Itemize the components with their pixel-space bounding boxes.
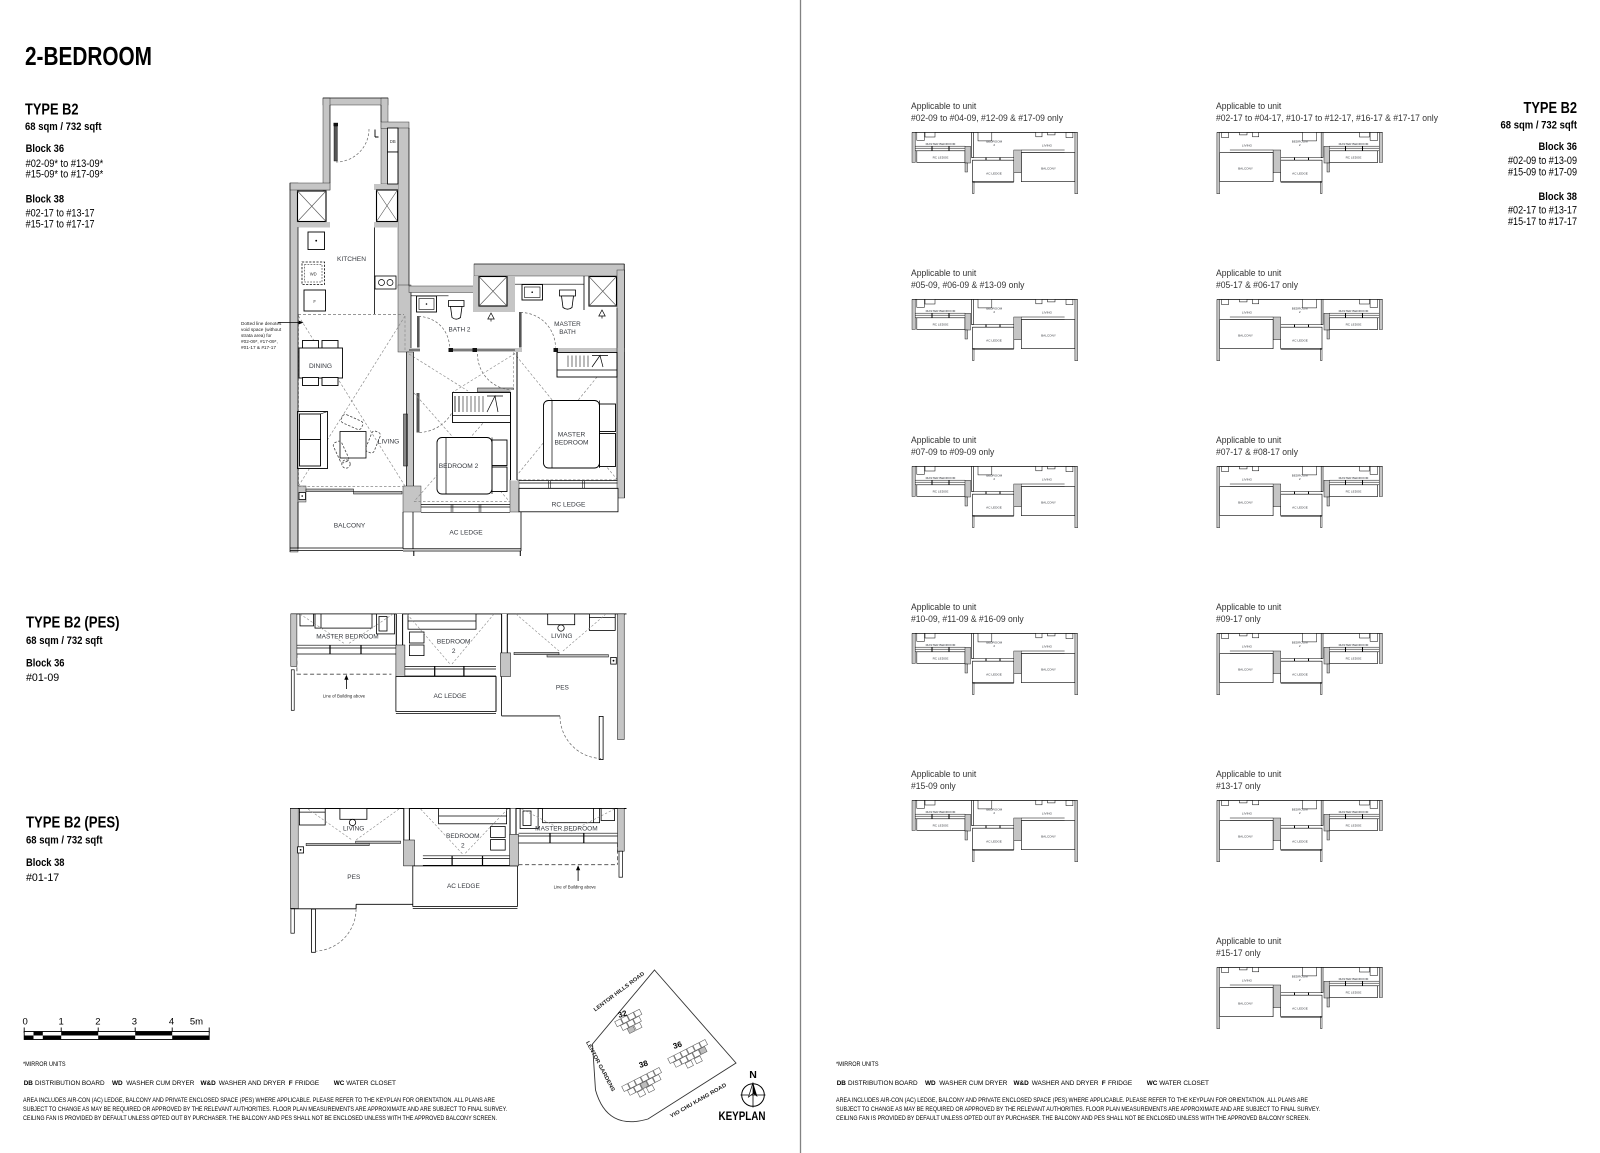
- svg-text:WD: WD: [112, 1080, 123, 1087]
- svg-text:WD: WD: [925, 1080, 936, 1087]
- svg-text:#13-17 only: #13-17 only: [1216, 781, 1261, 792]
- svg-text:68 sqm / 732 sqft: 68 sqm / 732 sqft: [25, 121, 102, 133]
- svg-text:#02-17 to #04-17, #10-17 to #1: #02-17 to #04-17, #10-17 to #12-17, #16-…: [1216, 113, 1438, 124]
- svg-text:Block 38: Block 38: [1539, 191, 1578, 203]
- svg-text:#15-17 to #17-17: #15-17 to #17-17: [26, 218, 95, 230]
- svg-text:MASTER BEDROOM: MASTER BEDROOM: [316, 634, 378, 641]
- svg-text:DISTRIBUTION BOARD: DISTRIBUTION BOARD: [848, 1080, 918, 1087]
- svg-text:W&D: W&D: [1014, 1080, 1030, 1087]
- svg-text:BEDROOM: BEDROOM: [437, 639, 471, 646]
- svg-text:Applicable to unit: Applicable to unit: [1216, 435, 1282, 446]
- svg-text:68 sqm / 732 sqft: 68 sqm / 732 sqft: [26, 635, 103, 647]
- svg-text:2: 2: [452, 648, 456, 655]
- svg-text:Applicable to unit: Applicable to unit: [911, 101, 977, 112]
- svg-text:#01-09: #01-09: [26, 672, 59, 684]
- svg-text:Applicable to unit: Applicable to unit: [911, 268, 977, 279]
- svg-text:#05-17 & #06-17 only: #05-17 & #06-17 only: [1216, 280, 1298, 291]
- svg-text:68 sqm / 732 sqft: 68 sqm / 732 sqft: [1501, 120, 1578, 132]
- svg-text:AREA INCLUDES AIR-CON (AC) LED: AREA INCLUDES AIR-CON (AC) LEDGE, BALCON…: [836, 1097, 1308, 1104]
- svg-text:DB: DB: [390, 139, 396, 144]
- svg-text:BALCONY: BALCONY: [334, 523, 366, 530]
- svg-text:#07-17 & #08-17 only: #07-17 & #08-17 only: [1216, 447, 1298, 458]
- svg-text:#09-17 only: #09-17 only: [1216, 614, 1261, 625]
- svg-text:68 sqm / 732 sqft: 68 sqm / 732 sqft: [26, 835, 103, 847]
- svg-text:WATER CLOSET: WATER CLOSET: [346, 1080, 396, 1087]
- svg-text:F: F: [313, 299, 316, 304]
- svg-text:BEDROOM 2: BEDROOM 2: [439, 463, 479, 470]
- svg-text:#02-17 to #13-17: #02-17 to #13-17: [1508, 205, 1577, 217]
- svg-text:Applicable to unit: Applicable to unit: [1216, 936, 1282, 947]
- svg-text:F: F: [289, 1080, 293, 1087]
- svg-text:36: 36: [672, 1039, 684, 1050]
- svg-text:LENTOR GARDENS: LENTOR GARDENS: [584, 1040, 616, 1093]
- svg-text:TYPE B2 (PES): TYPE B2 (PES): [26, 815, 120, 832]
- svg-text:WC: WC: [1147, 1080, 1158, 1087]
- svg-text:Applicable to unit: Applicable to unit: [911, 769, 977, 780]
- svg-text:#15-09 to #17-09: #15-09 to #17-09: [1508, 167, 1577, 179]
- svg-text:AREA INCLUDES AIR-CON (AC) LED: AREA INCLUDES AIR-CON (AC) LEDGE, BALCON…: [23, 1097, 495, 1104]
- svg-text:Block 38: Block 38: [26, 857, 65, 869]
- svg-text:2: 2: [95, 1017, 100, 1028]
- svg-text:Applicable to unit: Applicable to unit: [1216, 268, 1282, 279]
- svg-text:Applicable to unit: Applicable to unit: [911, 602, 977, 613]
- svg-text:DINING: DINING: [309, 363, 332, 370]
- svg-text:LIVING: LIVING: [343, 826, 364, 833]
- svg-text:Line of Building above: Line of Building above: [554, 884, 597, 889]
- svg-text:LENTOR HILLS ROAD: LENTOR HILLS ROAD: [593, 971, 646, 1013]
- svg-text:BATH 2: BATH 2: [449, 327, 471, 334]
- svg-text:N: N: [749, 1069, 757, 1081]
- svg-text:W&D: W&D: [201, 1080, 217, 1087]
- svg-text:WC: WC: [334, 1080, 345, 1087]
- svg-text:#15-17 to #17-17: #15-17 to #17-17: [1508, 216, 1577, 228]
- svg-text:PES: PES: [347, 874, 361, 881]
- svg-text:38: 38: [638, 1058, 650, 1069]
- svg-text:Block 36: Block 36: [1539, 141, 1578, 153]
- svg-text:PES: PES: [556, 685, 570, 692]
- svg-text:*MIRROR UNITS: *MIRROR UNITS: [836, 1061, 879, 1068]
- svg-text:#15-09 only: #15-09 only: [911, 781, 956, 792]
- svg-text:#01-17 & #17-17: #01-17 & #17-17: [241, 345, 276, 350]
- svg-text:BEDROOM: BEDROOM: [446, 833, 480, 840]
- svg-text:1: 1: [58, 1017, 63, 1028]
- svg-text:*MIRROR UNITS: *MIRROR UNITS: [23, 1061, 66, 1068]
- svg-text:strata area) for: strata area) for: [241, 333, 272, 338]
- svg-text:AC LEDGE: AC LEDGE: [433, 693, 467, 700]
- svg-text:DB: DB: [24, 1080, 34, 1087]
- svg-text:#02-09*, #17-09*,: #02-09*, #17-09*,: [241, 339, 278, 344]
- svg-text:WASHER AND DRYER: WASHER AND DRYER: [219, 1080, 286, 1087]
- svg-text:2-BEDROOM: 2-BEDROOM: [25, 43, 152, 71]
- svg-text:CEILING FAN IS PROVIDED BY DEF: CEILING FAN IS PROVIDED BY DEFAULT UNLES…: [23, 1115, 497, 1122]
- svg-text:SUBJECT TO CHANGE AS MAY BE RE: SUBJECT TO CHANGE AS MAY BE REQUIRED OR …: [23, 1106, 507, 1113]
- svg-text:#05-09, #06-09 & #13-09 only: #05-09, #06-09 & #13-09 only: [911, 280, 1025, 291]
- svg-text:0: 0: [23, 1017, 28, 1028]
- svg-text:2: 2: [461, 843, 465, 850]
- svg-text:LIVING: LIVING: [551, 633, 572, 640]
- svg-text:CEILING FAN IS PROVIDED BY DEF: CEILING FAN IS PROVIDED BY DEFAULT UNLES…: [836, 1115, 1310, 1122]
- svg-text:F: F: [1102, 1080, 1106, 1087]
- svg-text:#01-17: #01-17: [26, 872, 59, 884]
- svg-text:WASHER CUM DRYER: WASHER CUM DRYER: [939, 1080, 1008, 1087]
- svg-text:#10-09, #11-09 & #16-09 only: #10-09, #11-09 & #16-09 only: [911, 614, 1024, 625]
- svg-text:Line of Building above: Line of Building above: [323, 694, 366, 699]
- svg-text:TYPE B2: TYPE B2: [1524, 100, 1578, 117]
- svg-text:BEDROOM: BEDROOM: [554, 440, 588, 447]
- svg-text:WASHER AND DRYER: WASHER AND DRYER: [1032, 1080, 1099, 1087]
- svg-text:DISTRIBUTION BOARD: DISTRIBUTION BOARD: [35, 1080, 105, 1087]
- svg-text:Applicable to unit: Applicable to unit: [1216, 769, 1282, 780]
- svg-text:#02-09 to #13-09: #02-09 to #13-09: [1508, 155, 1577, 167]
- svg-text:TYPE B2 (PES): TYPE B2 (PES): [26, 615, 120, 632]
- svg-text:4: 4: [169, 1017, 174, 1028]
- svg-text:3: 3: [132, 1017, 137, 1028]
- svg-text:FRIDGE: FRIDGE: [1108, 1080, 1132, 1087]
- svg-text:WASHER CUM DRYER: WASHER CUM DRYER: [126, 1080, 195, 1087]
- svg-text:KEYPLAN: KEYPLAN: [719, 1109, 766, 1123]
- svg-text:MASTER BEDROOM: MASTER BEDROOM: [535, 826, 597, 833]
- svg-text:RC LEDGE: RC LEDGE: [552, 502, 586, 509]
- svg-text:DB: DB: [837, 1080, 847, 1087]
- svg-text:SUBJECT TO CHANGE AS MAY BE RE: SUBJECT TO CHANGE AS MAY BE REQUIRED OR …: [836, 1106, 1320, 1113]
- svg-text:Block 36: Block 36: [26, 143, 65, 155]
- svg-text:void space (without: void space (without: [241, 327, 282, 332]
- svg-text:FRIDGE: FRIDGE: [295, 1080, 319, 1087]
- svg-text:BATH: BATH: [559, 329, 576, 336]
- svg-text:Block 38: Block 38: [26, 194, 65, 206]
- svg-text:WD: WD: [310, 272, 317, 277]
- svg-text:Applicable to unit: Applicable to unit: [911, 435, 977, 446]
- svg-text:TYPE B2: TYPE B2: [25, 102, 79, 119]
- svg-text:KITCHEN: KITCHEN: [337, 256, 366, 263]
- svg-text:LIVING: LIVING: [378, 439, 400, 446]
- svg-text:5m: 5m: [190, 1017, 203, 1028]
- svg-text:WATER CLOSET: WATER CLOSET: [1159, 1080, 1209, 1087]
- svg-text:AC LEDGE: AC LEDGE: [449, 530, 483, 537]
- svg-text:#02-09 to #04-09, #12-09 & #17: #02-09 to #04-09, #12-09 & #17-09 only: [911, 113, 1063, 124]
- svg-text:#15-17 only: #15-17 only: [1216, 948, 1261, 959]
- svg-text:Dotted line denotes: Dotted line denotes: [241, 321, 282, 326]
- svg-text:Block 36: Block 36: [26, 658, 65, 670]
- svg-text:Applicable to unit: Applicable to unit: [1216, 101, 1282, 112]
- svg-text:MASTER: MASTER: [554, 321, 581, 328]
- svg-text:AC LEDGE: AC LEDGE: [447, 883, 481, 890]
- svg-text:MASTER: MASTER: [558, 432, 586, 439]
- svg-text:Applicable to unit: Applicable to unit: [1216, 602, 1282, 613]
- svg-text:#07-09 to #09-09 only: #07-09 to #09-09 only: [911, 447, 994, 458]
- svg-text:#15-09* to #17-09*: #15-09* to #17-09*: [26, 168, 104, 180]
